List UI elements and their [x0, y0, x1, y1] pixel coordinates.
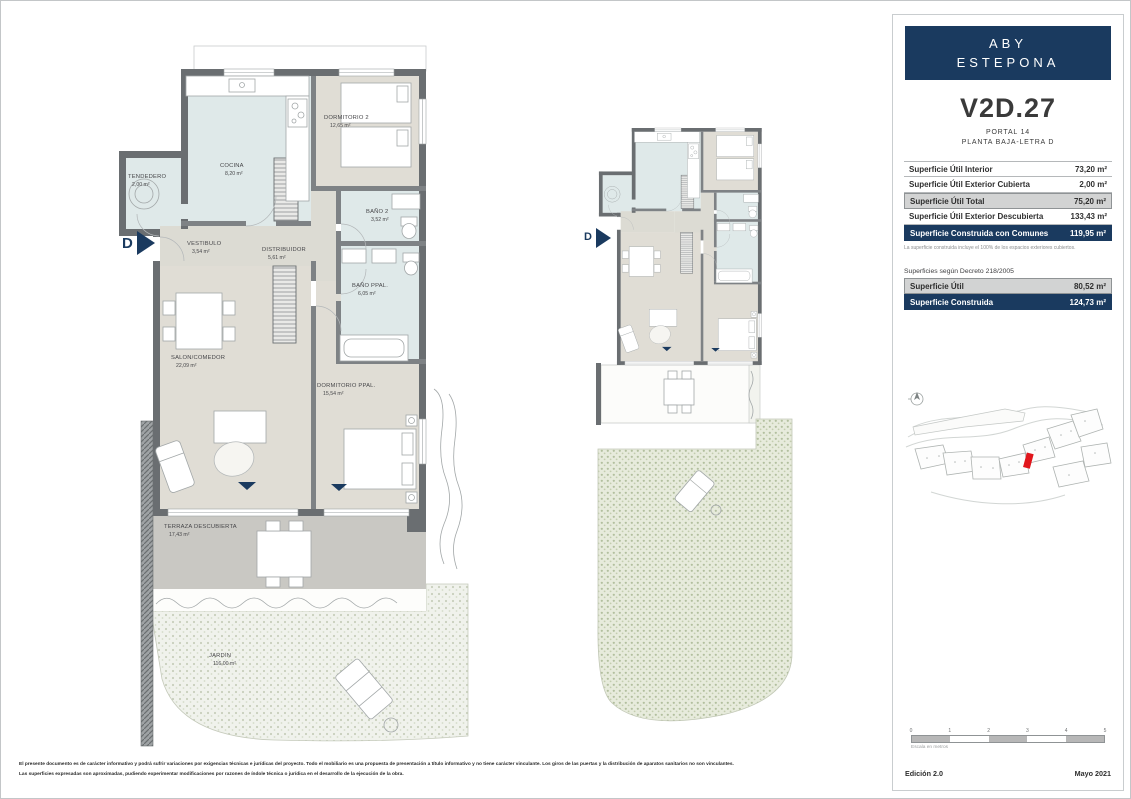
site-plan — [903, 387, 1113, 527]
terrace-table — [257, 521, 311, 587]
surface-row-total: Superficie Útil Total 75,20 m² — [904, 193, 1112, 209]
decreto-row: Superficie Construida 124,73 m² — [904, 294, 1112, 310]
date-label: Mayo 2021 — [1075, 769, 1111, 778]
svg-text:3,52 m²: 3,52 m² — [371, 217, 389, 223]
surface-value: 119,95 m² — [1070, 229, 1106, 238]
svg-text:BAÑO PPAL.: BAÑO PPAL. — [352, 282, 388, 289]
overview-garden — [598, 419, 792, 721]
surface-value: 75,20 m² — [1074, 197, 1106, 206]
surface-label: Superficie Construida con Comunes — [910, 229, 1048, 238]
decreto-title: Superficies según Decreto 218/2005 — [904, 268, 1112, 275]
svg-text:6,05 m²: 6,05 m² — [358, 291, 376, 297]
edition-label: Edición 2.0 — [905, 769, 943, 778]
svg-text:TERRAZA DESCUBIERTA: TERRAZA DESCUBIERTA — [164, 524, 237, 530]
svg-text:DORMITORIO PPAL.: DORMITORIO PPAL. — [317, 383, 376, 389]
main-floor-plan: D TENDEDERO 2,00 m² COCINA 8,20 m² DORMI… — [24, 39, 474, 749]
surface-label: Superficie Útil Interior — [909, 165, 993, 174]
surface-label: Superficie Útil Exterior Cubierta — [909, 180, 1030, 189]
planters — [434, 389, 462, 569]
svg-text:VESTIBULO: VESTIBULO — [187, 241, 222, 247]
plan-sheet: D TENDEDERO 2,00 m² COCINA 8,20 m² DORMI… — [0, 0, 1131, 799]
scale-caption: Escala en metros — [911, 745, 1105, 750]
surface-value: 2,00 m² — [1079, 180, 1107, 189]
svg-text:8,20 m²: 8,20 m² — [225, 171, 243, 177]
decreto-table: Superficie Útil 80,52 m² Superficie Cons… — [904, 278, 1112, 310]
svg-text:SALON/COMEDOR: SALON/COMEDOR — [171, 355, 225, 361]
svg-text:DISTRIBUIDOR: DISTRIBUIDOR — [262, 247, 306, 253]
surface-row: Superficie Útil Exterior Cubierta 2,00 m… — [904, 177, 1112, 193]
dwelling — [119, 69, 426, 516]
decreto-row: Superficie Útil 80,52 m² — [904, 278, 1112, 294]
surface-value: 133,43 m² — [1071, 212, 1107, 221]
scale-bar: 0 1 2 3 4 5 Escala en metros — [911, 728, 1105, 750]
brand-line1: ABY — [989, 36, 1027, 51]
svg-text:BAÑO 2: BAÑO 2 — [366, 208, 388, 215]
svg-text:3,54 m²: 3,54 m² — [192, 249, 210, 255]
panel-footer: Edición 2.0 Mayo 2021 — [905, 769, 1111, 778]
surface-value: 80,52 m² — [1074, 282, 1106, 291]
surfaces-note: La superficie construida incluye el 100%… — [904, 245, 1112, 251]
surface-value: 124,73 m² — [1070, 298, 1106, 307]
shrub-band — [151, 589, 426, 611]
svg-text:JARDIN: JARDIN — [209, 653, 231, 659]
scale-ticks: 0 1 2 3 4 5 — [911, 728, 1105, 735]
disclaimer: El presente documento es de carácter inf… — [19, 760, 734, 779]
overview-floor-plan: D — [546, 101, 876, 746]
svg-text:D: D — [584, 231, 592, 243]
surface-row-constructed: Superficie Construida con Comunes 119,95… — [904, 225, 1112, 241]
roof-overhang-outline — [194, 46, 426, 71]
surface-label: Superficie Útil — [910, 282, 964, 291]
disclaimer-line1: El presente documento es de carácter inf… — [19, 760, 734, 770]
svg-text:2,00 m²: 2,00 m² — [132, 182, 150, 188]
svg-text:15,54 m²: 15,54 m² — [323, 391, 344, 397]
svg-text:TENDEDERO: TENDEDERO — [128, 174, 166, 180]
surface-value: 73,20 m² — [1075, 165, 1107, 174]
portal-label: PORTAL 14 — [893, 129, 1123, 136]
overview-entrance-marker: D — [584, 228, 611, 248]
surface-label: Superficie Construida — [910, 298, 993, 307]
disclaimer-line2: Las superficies expresadas son aproximad… — [19, 770, 734, 780]
scale-bar-segments — [911, 735, 1105, 743]
surfaces-table: Superficie Útil Interior 73,20 m² Superf… — [904, 161, 1112, 241]
boundary-wall — [141, 421, 153, 746]
entrance-letter: D — [122, 235, 133, 252]
floor-label: PLANTA BAJA-LETRA D — [893, 139, 1123, 146]
svg-text:DORMITORIO 2: DORMITORIO 2 — [324, 115, 369, 121]
surface-label: Superficie Útil Total — [910, 197, 985, 206]
entrance-arrow-icon — [596, 228, 611, 248]
svg-text:22,09 m²: 22,09 m² — [176, 363, 197, 369]
svg-text:17,43 m²: 17,43 m² — [169, 532, 190, 538]
svg-text:5,61 m²: 5,61 m² — [268, 255, 286, 261]
svg-text:COCINA: COCINA — [220, 163, 244, 169]
unit-code: V2D.27 — [893, 93, 1123, 124]
svg-text:12,65 m²: 12,65 m² — [330, 123, 351, 129]
surface-row: Superficie Útil Interior 73,20 m² — [904, 161, 1112, 177]
surface-label: Superficie Útil Exterior Descubierta — [909, 212, 1043, 221]
info-panel: ABY ESTEPONA V2D.27 PORTAL 14 PLANTA BAJ… — [892, 14, 1124, 791]
svg-text:116,00 m²: 116,00 m² — [213, 661, 236, 667]
north-compass-icon — [908, 392, 923, 405]
surface-row: Superficie Útil Exterior Descubierta 133… — [904, 209, 1112, 225]
brand-line2: ESTEPONA — [957, 55, 1060, 70]
brand-box: ABY ESTEPONA — [905, 26, 1111, 80]
